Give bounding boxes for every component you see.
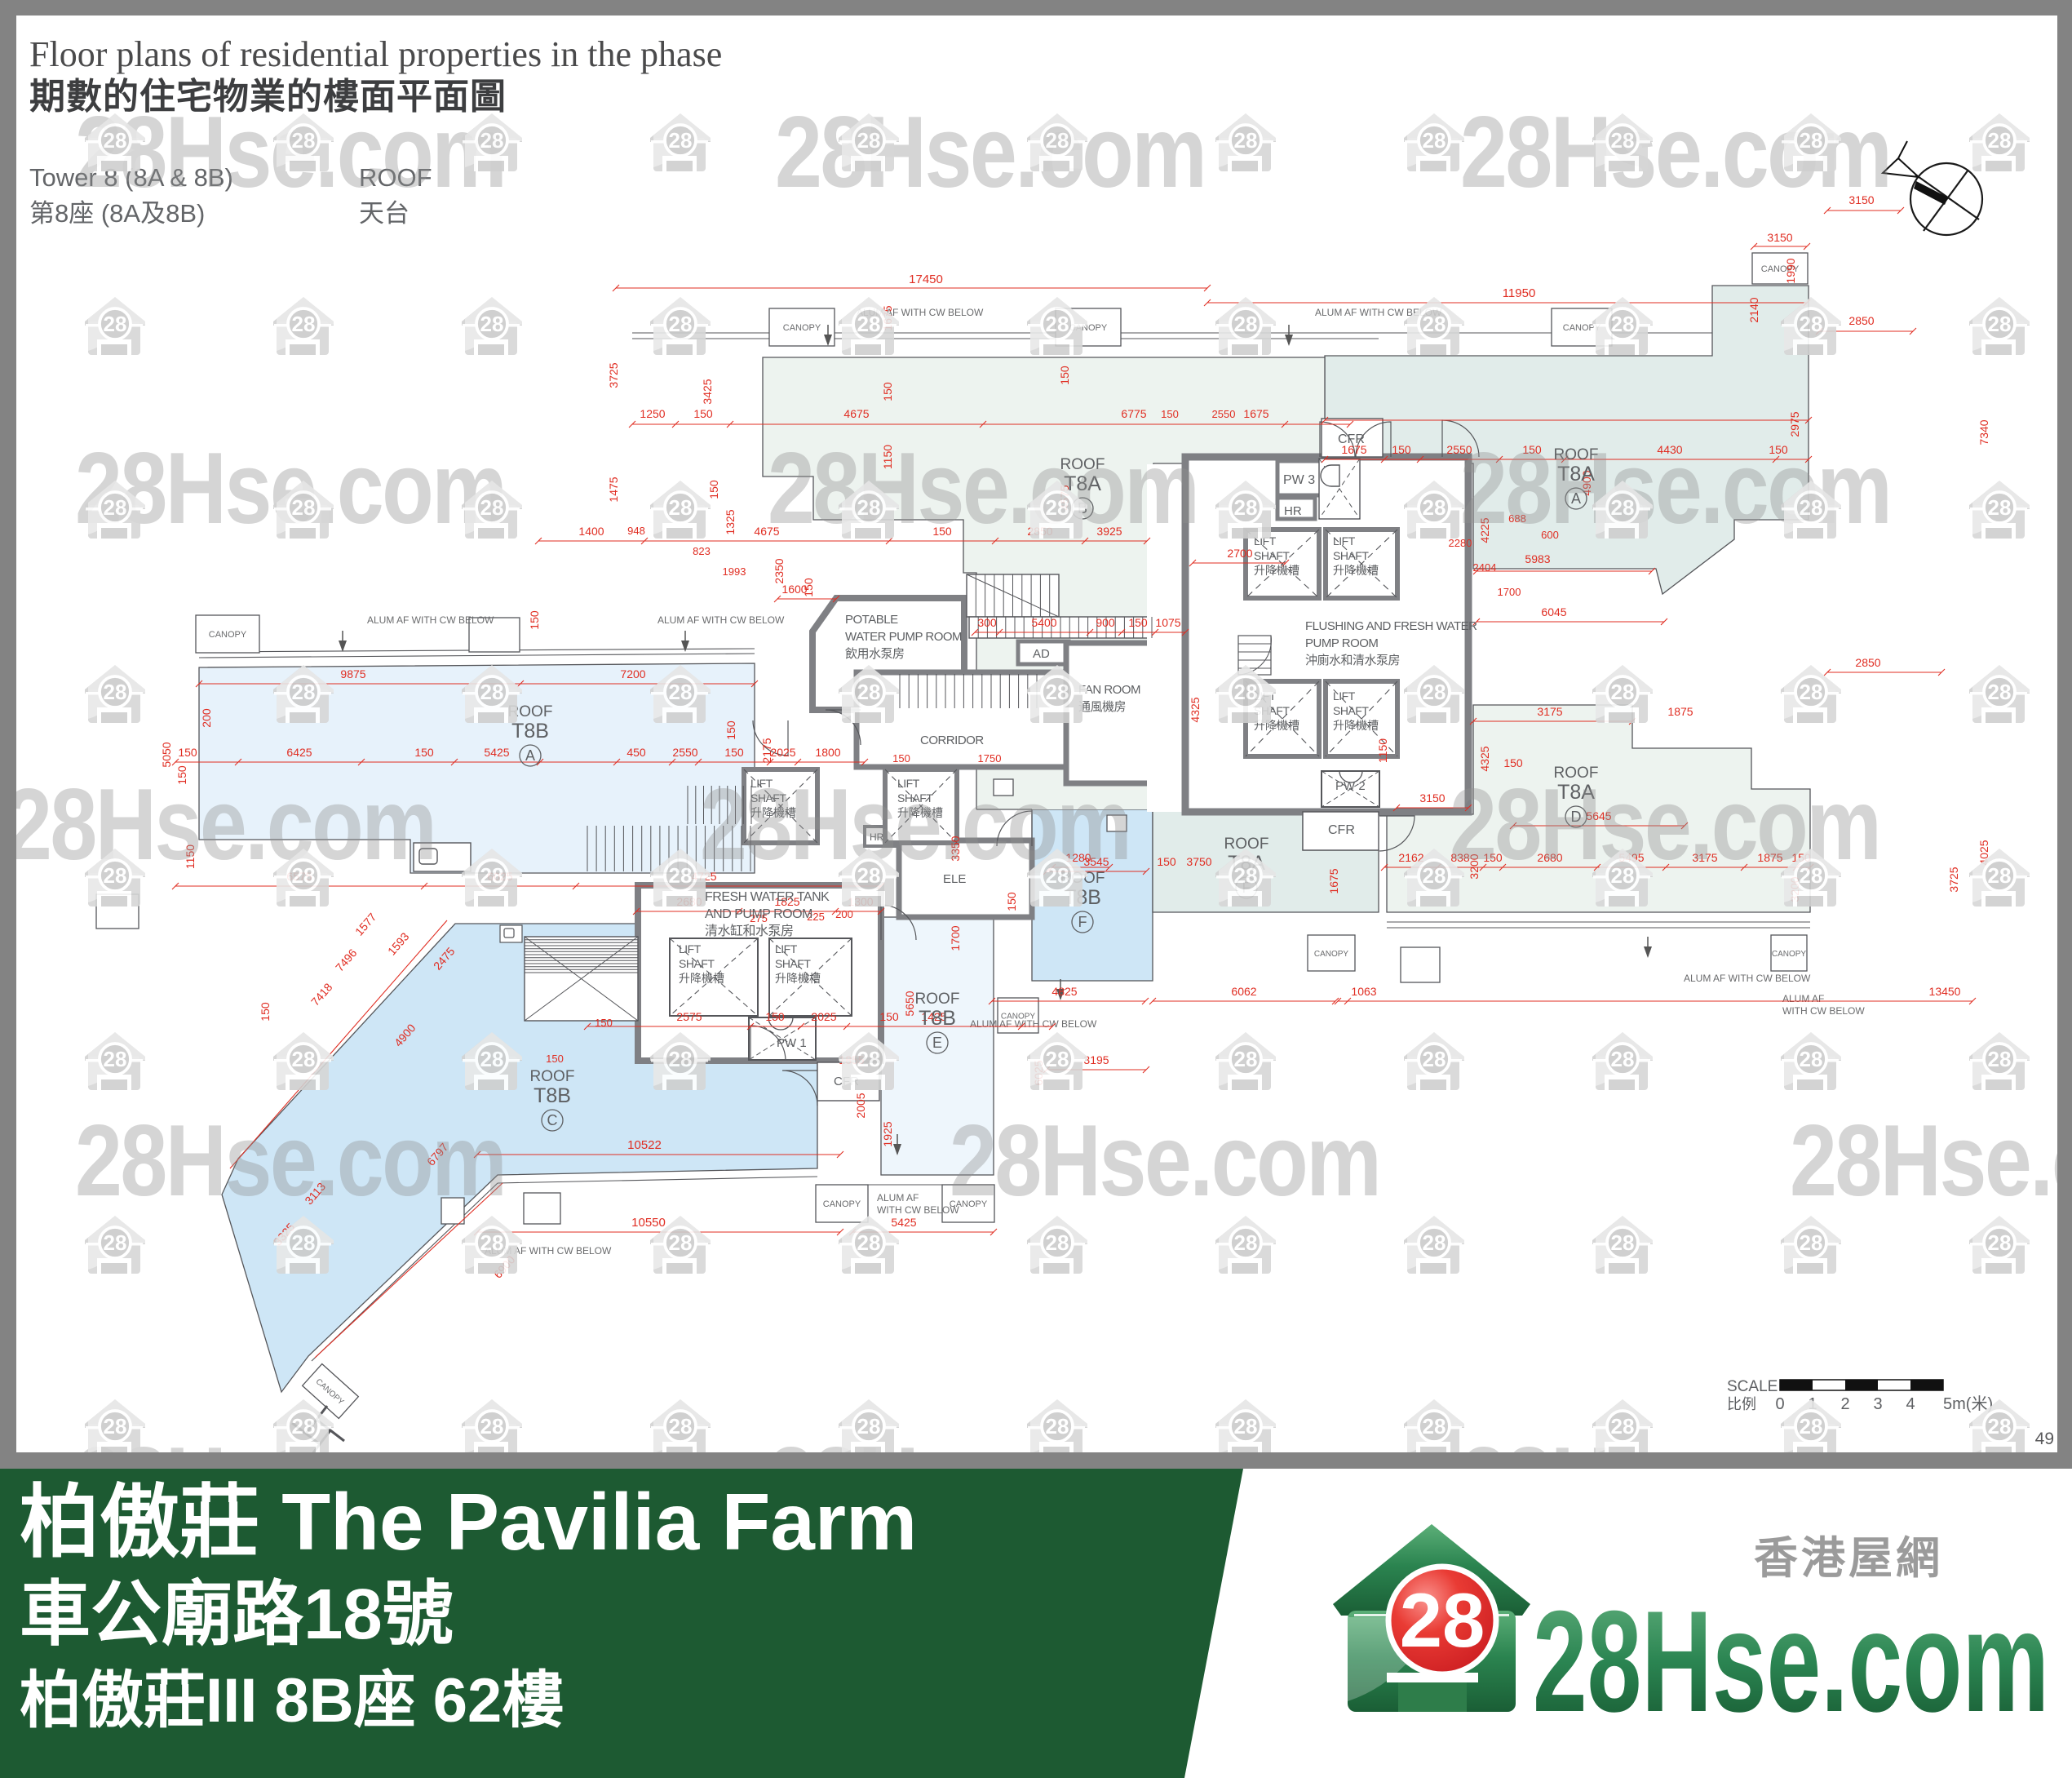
- svg-text:升降機槽: 升降機槽: [1333, 719, 1379, 732]
- svg-text:升降機槽: 升降機槽: [1333, 564, 1379, 577]
- svg-text:4675: 4675: [843, 407, 869, 420]
- svg-text:1700: 1700: [949, 925, 962, 951]
- svg-text:CANOPY: CANOPY: [783, 323, 821, 333]
- svg-text:150: 150: [595, 1017, 613, 1029]
- svg-text:3150: 3150: [1767, 231, 1792, 244]
- svg-text:2700: 2700: [1227, 547, 1252, 560]
- svg-text:900: 900: [1096, 616, 1115, 629]
- svg-text:1800: 1800: [815, 746, 840, 759]
- svg-text:2575: 2575: [676, 1010, 702, 1023]
- svg-text:3150: 3150: [1419, 791, 1445, 805]
- svg-text:F: F: [1078, 914, 1087, 930]
- svg-text:LIFT: LIFT: [1333, 689, 1356, 703]
- svg-text:2: 2: [1840, 1395, 1849, 1413]
- svg-text:9875: 9875: [340, 667, 365, 680]
- svg-text:2175: 2175: [760, 738, 773, 763]
- svg-text:清水缸和水泵房: 清水缸和水泵房: [705, 923, 794, 938]
- svg-text:3725: 3725: [607, 362, 620, 388]
- svg-text:150: 150: [765, 1010, 785, 1023]
- svg-text:6062: 6062: [1231, 985, 1256, 998]
- svg-text:1750: 1750: [978, 752, 1002, 765]
- svg-text:150: 150: [1005, 892, 1018, 911]
- svg-text:1993: 1993: [723, 565, 746, 578]
- svg-text:CANOPY: CANOPY: [1772, 950, 1807, 959]
- svg-text:7340: 7340: [1977, 419, 1990, 445]
- svg-text:4: 4: [1906, 1395, 1915, 1413]
- svg-text:150: 150: [1058, 366, 1071, 385]
- svg-text:AD: AD: [1033, 647, 1050, 661]
- svg-text:200: 200: [835, 908, 853, 920]
- svg-text:CANOPY: CANOPY: [823, 1199, 861, 1209]
- svg-text:6775: 6775: [1121, 407, 1146, 420]
- svg-text:5983: 5983: [1525, 552, 1550, 565]
- svg-text:SHAFT: SHAFT: [679, 957, 715, 970]
- svg-text:WITH CW BELOW: WITH CW BELOW: [877, 1204, 959, 1216]
- svg-text:CANOPY: CANOPY: [209, 630, 247, 640]
- svg-text:WATER PUMP ROOM: WATER PUMP ROOM: [845, 630, 962, 644]
- svg-text:150: 150: [1157, 855, 1176, 868]
- svg-text:3: 3: [1873, 1395, 1882, 1413]
- svg-text:1400: 1400: [578, 525, 604, 538]
- svg-text:2550: 2550: [1212, 408, 1236, 420]
- svg-text:ROOF: ROOF: [915, 991, 960, 1008]
- svg-text:SCALE: SCALE: [1727, 1378, 1778, 1395]
- svg-text:17450: 17450: [909, 273, 943, 286]
- svg-text:車公廟路18號: 車公廟路18號: [20, 1575, 454, 1654]
- svg-text:1150: 1150: [1376, 738, 1389, 763]
- svg-text:SHAFT: SHAFT: [1333, 704, 1369, 717]
- svg-text:300: 300: [977, 616, 997, 629]
- svg-text:香港屋網: 香港屋網: [1754, 1534, 1943, 1583]
- svg-text:2025: 2025: [811, 1010, 836, 1023]
- svg-text:LIFT: LIFT: [1333, 534, 1356, 547]
- svg-text:1475: 1475: [607, 477, 620, 502]
- svg-text:POTABLE: POTABLE: [845, 613, 898, 627]
- svg-text:150: 150: [881, 382, 894, 401]
- svg-text:6425: 6425: [286, 746, 312, 759]
- svg-text:ALUM AF WITH CW BELOW: ALUM AF WITH CW BELOW: [367, 614, 494, 626]
- svg-text:2850: 2850: [1848, 314, 1874, 327]
- svg-text:LIFT: LIFT: [775, 942, 798, 955]
- svg-text:0: 0: [1775, 1395, 1784, 1413]
- svg-text:150: 150: [802, 578, 815, 597]
- svg-text:1990: 1990: [1784, 258, 1797, 283]
- svg-text:5m(米): 5m(米): [1943, 1394, 1993, 1413]
- svg-text:150: 150: [879, 1010, 899, 1023]
- svg-text:150: 150: [1128, 616, 1148, 629]
- svg-text:3425: 3425: [701, 379, 714, 404]
- svg-text:FLUSHING AND FRESH WATER: FLUSHING AND FRESH WATER: [1305, 619, 1477, 633]
- svg-text:升降機槽: 升降機槽: [775, 972, 821, 985]
- svg-text:升降機槽: 升降機槽: [679, 972, 724, 985]
- svg-text:150: 150: [724, 746, 744, 759]
- svg-text:3725: 3725: [1947, 867, 1960, 892]
- svg-text:CFR: CFR: [1328, 823, 1355, 837]
- svg-text:2140: 2140: [1747, 297, 1760, 322]
- svg-text:150: 150: [693, 407, 713, 420]
- svg-text:28Hse.com: 28Hse.com: [1533, 1580, 2049, 1742]
- svg-text:2350: 2350: [773, 558, 786, 583]
- svg-text:CANOPY: CANOPY: [1314, 950, 1349, 959]
- svg-text:150: 150: [414, 746, 434, 759]
- svg-text:150: 150: [724, 720, 737, 740]
- svg-text:5050: 5050: [160, 742, 173, 767]
- svg-text:5425: 5425: [484, 746, 509, 759]
- svg-text:PW 2: PW 2: [1335, 779, 1366, 793]
- svg-text:10522: 10522: [627, 1138, 662, 1152]
- svg-text:200: 200: [200, 708, 213, 728]
- svg-text:CORRIDOR: CORRIDOR: [920, 734, 984, 747]
- svg-text:823: 823: [693, 545, 711, 557]
- svg-text:1675: 1675: [1243, 407, 1268, 420]
- svg-text:13450: 13450: [1929, 985, 1961, 998]
- svg-text:2550: 2550: [672, 746, 697, 759]
- svg-text:1675: 1675: [1327, 868, 1340, 893]
- svg-text:1250: 1250: [640, 407, 665, 420]
- svg-text:WITH CW BELOW: WITH CW BELOW: [1782, 1005, 1865, 1017]
- svg-text:升降機槽: 升降機槽: [1254, 564, 1299, 577]
- svg-text:PW 1: PW 1: [777, 1036, 807, 1050]
- svg-text:6045: 6045: [1541, 605, 1566, 618]
- svg-text:5425: 5425: [891, 1216, 916, 1229]
- svg-text:PUMP ROOM: PUMP ROOM: [1305, 636, 1378, 650]
- svg-text:CFR: CFR: [1338, 432, 1365, 446]
- svg-text:SHAFT: SHAFT: [775, 957, 811, 970]
- svg-text:T8B: T8B: [919, 1007, 956, 1030]
- svg-text:HR: HR: [1284, 504, 1302, 518]
- svg-text:4325: 4325: [1189, 697, 1202, 722]
- svg-text:Floor plans of residential pro: Floor plans of residential properties in…: [29, 34, 722, 74]
- svg-text:2404: 2404: [1473, 561, 1497, 574]
- svg-text:ROOF: ROOF: [530, 1068, 575, 1085]
- svg-text:T8B: T8B: [511, 720, 549, 742]
- svg-text:4825: 4825: [1051, 985, 1077, 998]
- svg-text:150: 150: [892, 752, 910, 765]
- svg-text:3750: 3750: [1186, 855, 1211, 868]
- svg-text:柏傲莊 The Pavilia Farm: 柏傲莊 The Pavilia Farm: [20, 1477, 917, 1567]
- svg-text:150: 150: [707, 480, 720, 499]
- svg-text:150: 150: [546, 1053, 564, 1065]
- svg-text:AND PUMP ROOM: AND PUMP ROOM: [705, 907, 812, 921]
- svg-text:ALUM AF WITH CW BELOW: ALUM AF WITH CW BELOW: [1684, 973, 1811, 984]
- svg-text:2005: 2005: [854, 1093, 867, 1118]
- svg-text:FRESH WATER TANK: FRESH WATER TANK: [705, 890, 830, 904]
- svg-text:1075: 1075: [1155, 616, 1180, 629]
- svg-text:比例: 比例: [1727, 1396, 1756, 1412]
- svg-text:49: 49: [2035, 1430, 2054, 1448]
- svg-text:飲用水泵房: 飲用水泵房: [845, 647, 905, 661]
- svg-text:5400: 5400: [1031, 616, 1056, 629]
- svg-text:1875: 1875: [1667, 705, 1693, 718]
- svg-text:150: 150: [1161, 408, 1179, 420]
- svg-text:7200: 7200: [620, 667, 645, 680]
- svg-text:E: E: [932, 1035, 942, 1051]
- svg-text:3175: 3175: [1537, 705, 1562, 718]
- svg-text:28: 28: [1400, 1577, 1485, 1663]
- svg-text:150: 150: [528, 610, 541, 630]
- svg-text:柏傲莊III 8B座 62樓: 柏傲莊III 8B座 62樓: [20, 1666, 564, 1735]
- svg-text:11950: 11950: [1503, 286, 1536, 300]
- svg-text:ALUM AF: ALUM AF: [1782, 993, 1824, 1004]
- svg-text:3195: 3195: [1083, 1053, 1109, 1066]
- svg-text:150: 150: [1392, 443, 1411, 456]
- svg-text:1325: 1325: [724, 509, 737, 534]
- svg-text:150: 150: [259, 1002, 272, 1022]
- svg-text:SHAFT: SHAFT: [1333, 549, 1369, 562]
- svg-text:T8B: T8B: [533, 1084, 571, 1107]
- svg-text:10550: 10550: [631, 1216, 666, 1230]
- svg-text:A: A: [525, 747, 535, 764]
- svg-text:450: 450: [626, 746, 646, 759]
- svg-text:沖廁水和清水泵房: 沖廁水和清水泵房: [1305, 653, 1400, 667]
- svg-text:150: 150: [178, 746, 197, 759]
- svg-text:2850: 2850: [1855, 656, 1880, 669]
- svg-text:C: C: [547, 1112, 558, 1128]
- svg-text:ALUM AF WITH CW BELOW: ALUM AF WITH CW BELOW: [970, 1018, 1097, 1030]
- svg-text:PW 3: PW 3: [1283, 473, 1315, 487]
- svg-text:SHAFT: SHAFT: [1254, 549, 1290, 562]
- svg-text:通風機房: 通風機房: [1078, 700, 1126, 714]
- svg-text:948: 948: [627, 525, 645, 537]
- svg-text:ALUM AF WITH CW BELOW: ALUM AF WITH CW BELOW: [657, 614, 785, 626]
- svg-text:1063: 1063: [1351, 985, 1376, 998]
- svg-text:2025: 2025: [770, 746, 795, 759]
- svg-text:LIFT: LIFT: [679, 942, 702, 955]
- svg-text:1925: 1925: [881, 1121, 894, 1146]
- svg-text:1700: 1700: [1498, 586, 1521, 598]
- svg-text:FAN ROOM: FAN ROOM: [1078, 683, 1140, 697]
- svg-text:ALUM AF: ALUM AF: [877, 1192, 919, 1204]
